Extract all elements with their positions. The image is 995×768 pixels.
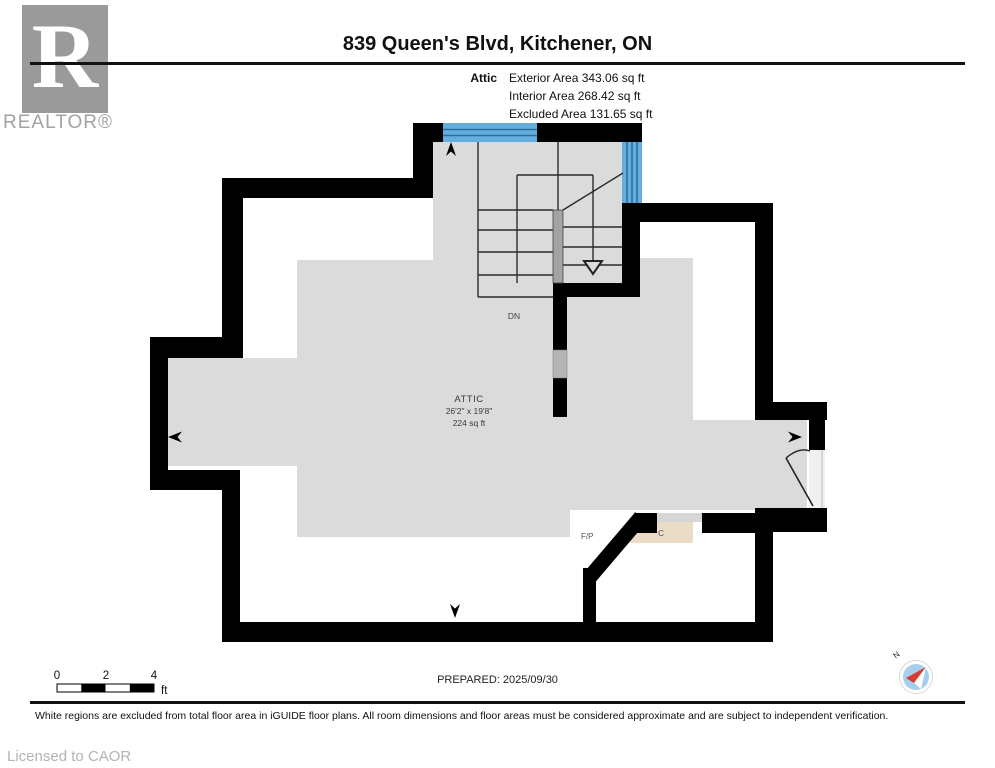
scale-unit: ft (161, 685, 168, 697)
compass-north-label: N (891, 650, 901, 661)
closet-door-opening (657, 513, 702, 522)
excluded-area: Excluded Area 131.65 sq ft (509, 105, 652, 123)
room-area: 224 sq ft (453, 418, 486, 428)
floor-area-summary: Attic Exterior Area 343.06 sq ft Interio… (412, 69, 652, 123)
compass-icon: N (891, 650, 932, 694)
closet-label: C (658, 529, 664, 538)
exterior-area: Exterior Area 343.06 sq ft (509, 69, 652, 87)
fireplace-label: F/P (581, 532, 593, 541)
page-title: 839 Queen's Blvd, Kitchener, ON (0, 33, 995, 56)
floor-label: Attic (412, 69, 497, 123)
arrow-down-icon (450, 604, 460, 618)
skylight-window-top (443, 123, 537, 142)
stair-divider-wall (553, 210, 563, 283)
fireplace-diagonal-wall (589, 517, 641, 578)
room-name: ATTIC (454, 394, 483, 405)
stair-wall-door-opening (553, 350, 567, 378)
interior-area: Interior Area 268.42 sq ft (509, 87, 652, 105)
title-divider (30, 62, 965, 65)
stairs-dn-label: DN (508, 311, 520, 321)
prepared-date: PREPARED: 2025/09/30 (0, 674, 995, 686)
interior-floor-area (168, 142, 807, 537)
floor-plan-page: R REALTOR® 839 Queen's Blvd, Kitchener, … (0, 0, 995, 768)
skylight-window-right (622, 142, 642, 203)
room-dimensions: 26'2" x 19'8" (446, 406, 493, 416)
